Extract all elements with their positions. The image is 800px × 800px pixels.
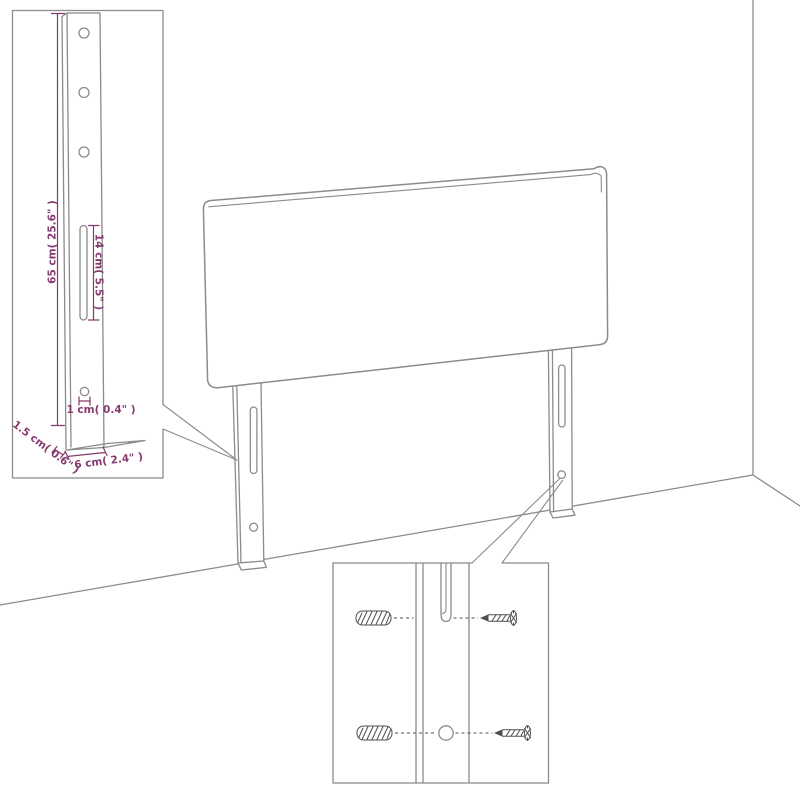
headboard-assembly-diagram: 65 cm( 25.6" ) 14 cm( 5.5" ) 1 cm( 0.4" … xyxy=(0,0,800,800)
leg-detail-drawing xyxy=(62,13,145,450)
leg-top-hole-3 xyxy=(79,147,89,157)
dimension-hole-diameter: 1 cm( 0.4" ) xyxy=(66,397,135,416)
leg-detail-slot xyxy=(80,226,87,321)
leg-detail-bottom-face xyxy=(67,441,146,451)
headboard-left-leg xyxy=(233,383,266,570)
leg-inset-leader-lines xyxy=(163,405,237,461)
dimension-leg-height: 65 cm( 25.6" ) xyxy=(47,14,65,426)
headboard-right-leg xyxy=(548,349,575,518)
headboard-outline xyxy=(203,167,607,388)
floor-line-left xyxy=(0,475,753,605)
alignment-dashes xyxy=(394,618,493,733)
leg-top-hole-1 xyxy=(79,28,89,38)
slot-length-label: 14 cm( 5.5" ) xyxy=(93,234,105,310)
hole-diameter-label: 1 cm( 0.4" ) xyxy=(66,404,135,416)
leg-detail-small-hole xyxy=(80,387,88,395)
floor-line-right xyxy=(753,475,800,506)
wall-anchor-icon xyxy=(356,611,391,625)
dimension-slot-length: 14 cm( 5.5" ) xyxy=(89,226,105,321)
leg-top-hole-2 xyxy=(79,88,89,98)
hardware-detail-inset xyxy=(333,563,549,783)
leg-width-label: 6 cm( 2.4" ) xyxy=(74,451,144,471)
leg-height-label: 65 cm( 25.6" ) xyxy=(47,200,59,284)
leg-closeup-drawing xyxy=(416,563,469,783)
wall-anchor-icon xyxy=(357,726,392,740)
closeup-hole xyxy=(439,726,453,740)
leg-dimension-inset: 65 cm( 25.6" ) 14 cm( 5.5" ) 1 cm( 0.4" … xyxy=(10,11,163,479)
screw-icon xyxy=(494,726,531,741)
screw-icon xyxy=(480,611,517,626)
headboard-panel xyxy=(203,167,607,388)
